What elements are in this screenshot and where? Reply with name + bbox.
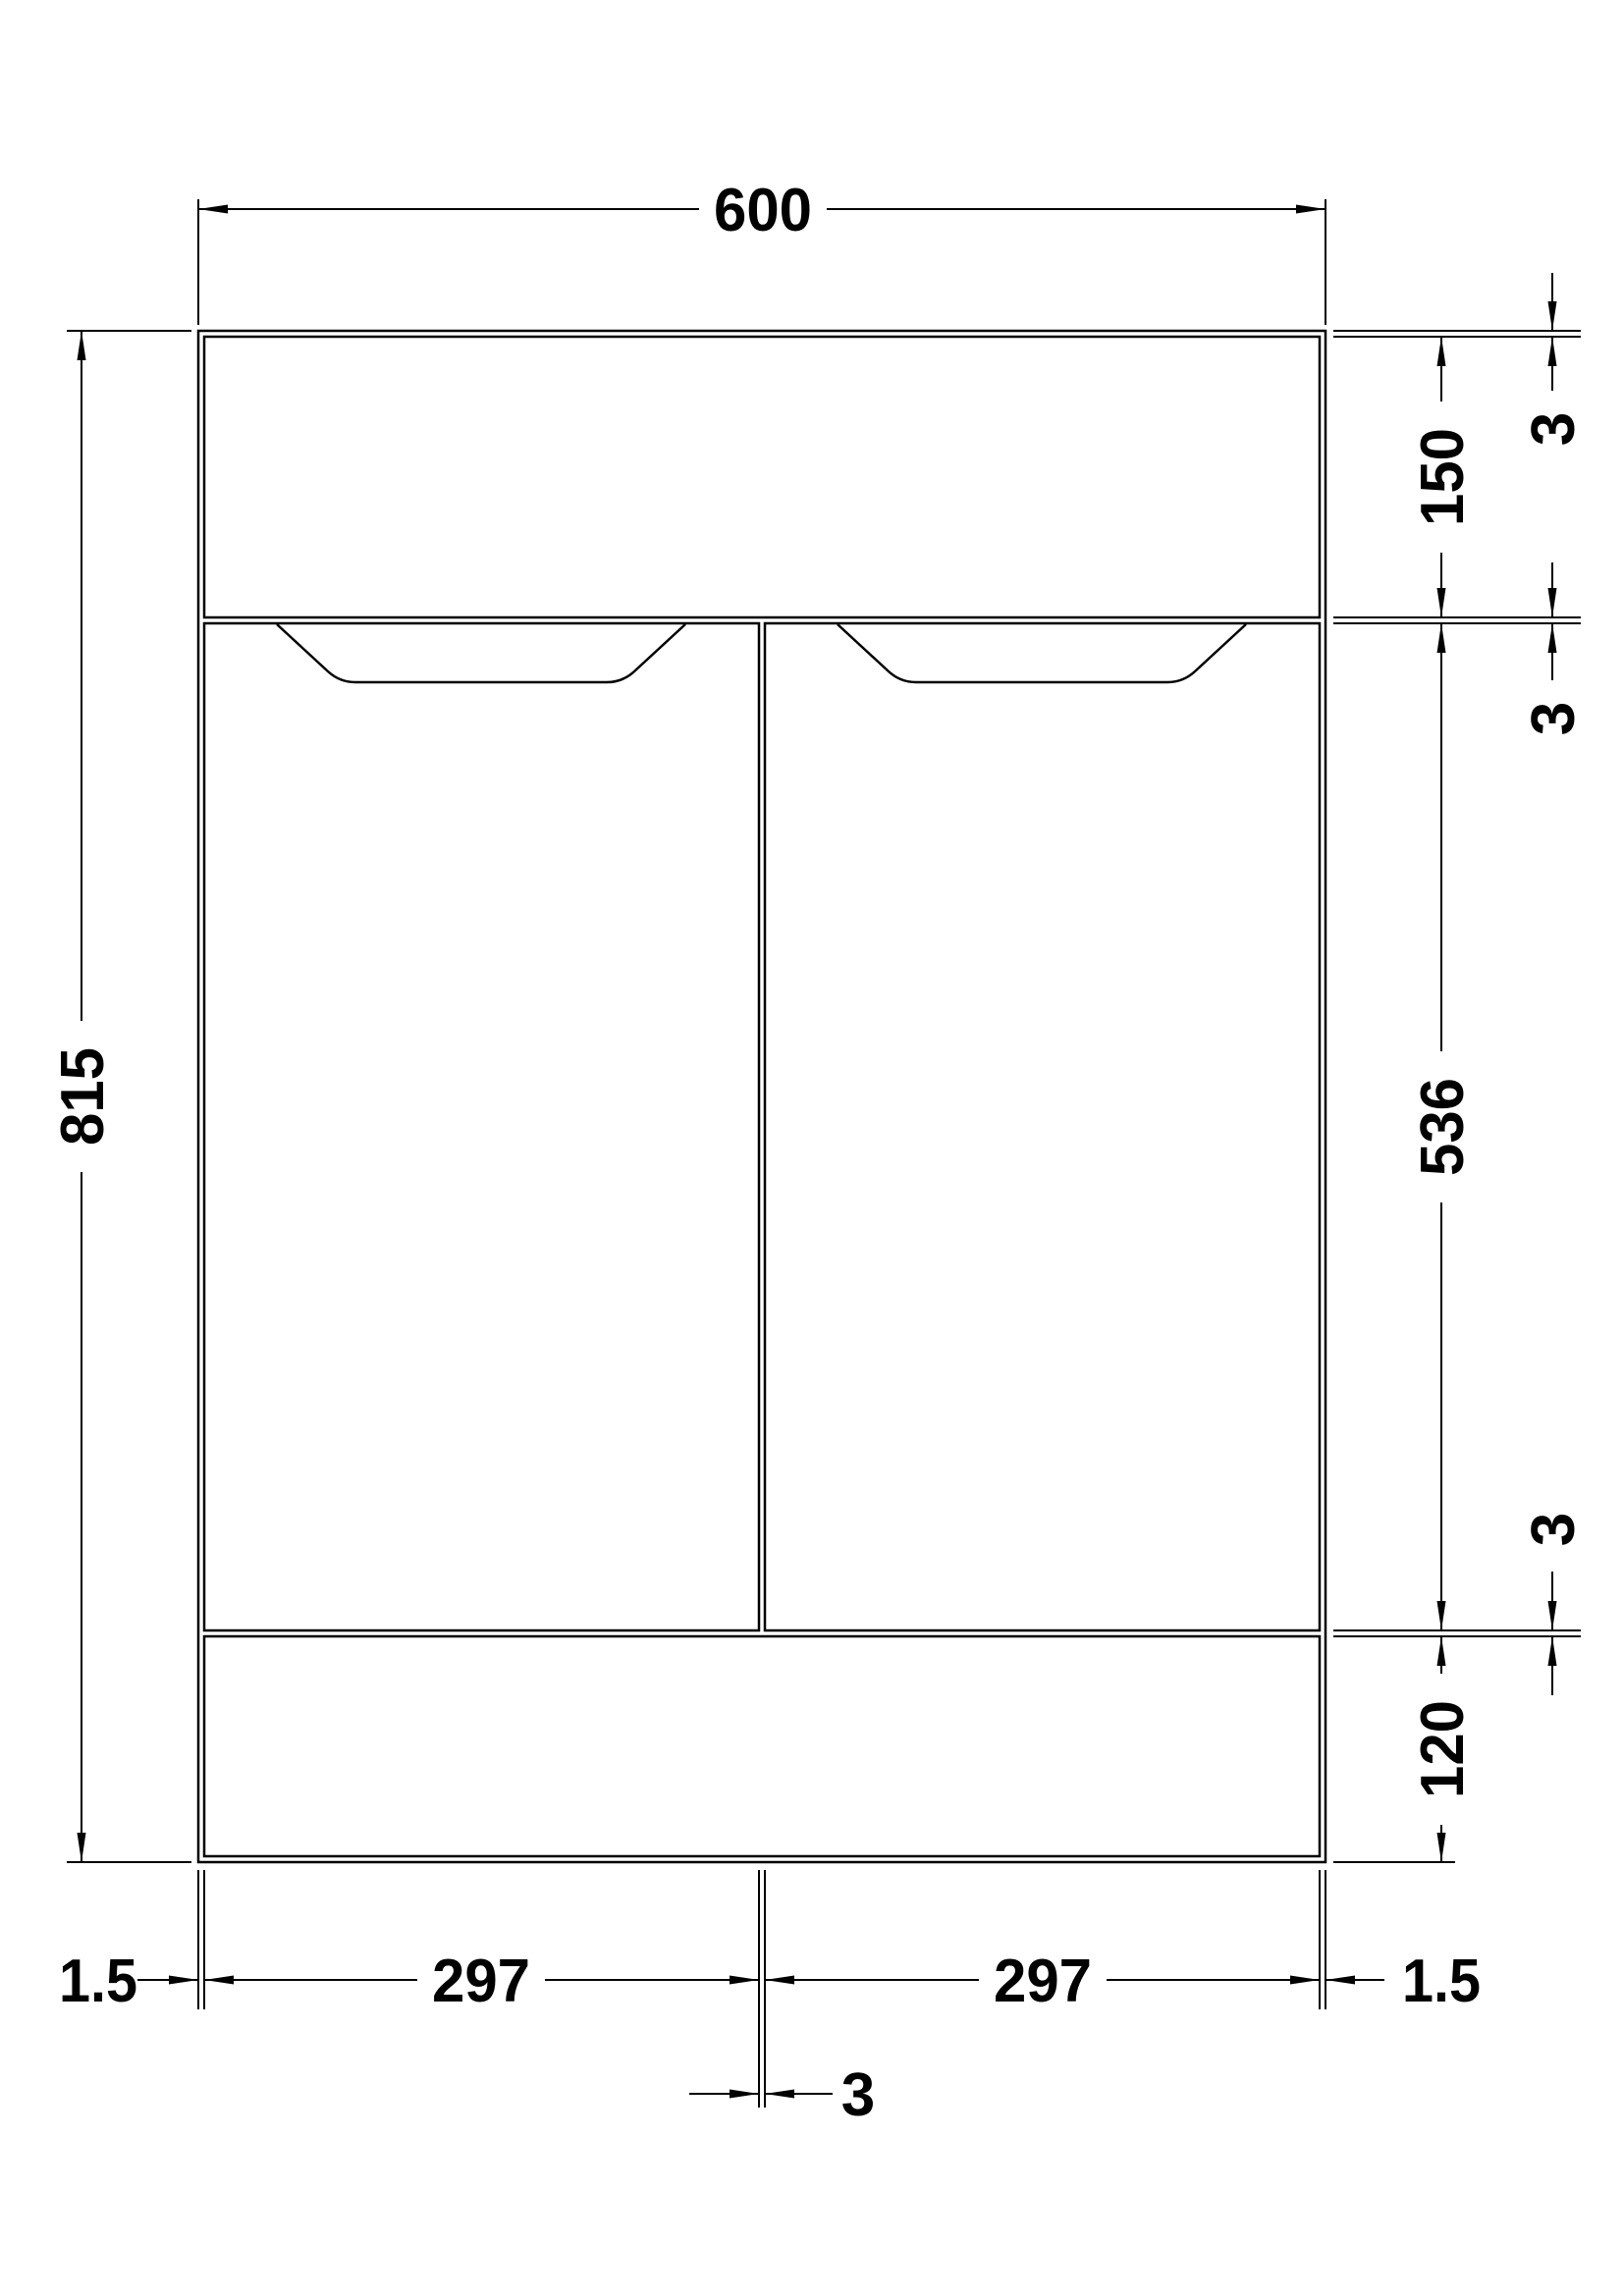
handle-recess-right [838,624,1246,682]
label-door-height: 536 [1409,1078,1477,1176]
cabinet-outline [198,331,1325,1862]
label-plinth-height: 120 [1409,1700,1477,1798]
label-left-edge-offset: 1.5 [59,1948,137,2015]
label-centre-gap: 3 [841,2061,875,2129]
label-left-door-width: 297 [432,1948,530,2015]
door-left [204,623,759,1630]
plinth [204,1636,1320,1856]
label-overall-height: 815 [49,1047,117,1146]
label-right-edge-offset: 1.5 [1402,1948,1481,2015]
top-panel [204,337,1320,617]
label-right-door-width: 297 [994,1948,1092,2015]
label-bottom-gap: 3 [1520,1513,1588,1546]
handle-recess-left [277,624,685,682]
label-top-panel-height: 150 [1409,428,1477,526]
drawing-sheet: 600 815 150 536 120 3 3 3 1.5 297 297 1.… [0,0,1623,2296]
door-right [765,623,1320,1630]
label-top-gap: 3 [1520,412,1588,446]
vanity-unit-front-elevation: 600 815 150 536 120 3 3 3 1.5 297 297 1.… [0,0,1623,2296]
dimension-labels: 600 815 150 536 120 3 3 3 1.5 297 297 1.… [49,177,1588,2129]
label-mid-gap: 3 [1520,702,1588,735]
label-overall-width: 600 [714,177,812,244]
